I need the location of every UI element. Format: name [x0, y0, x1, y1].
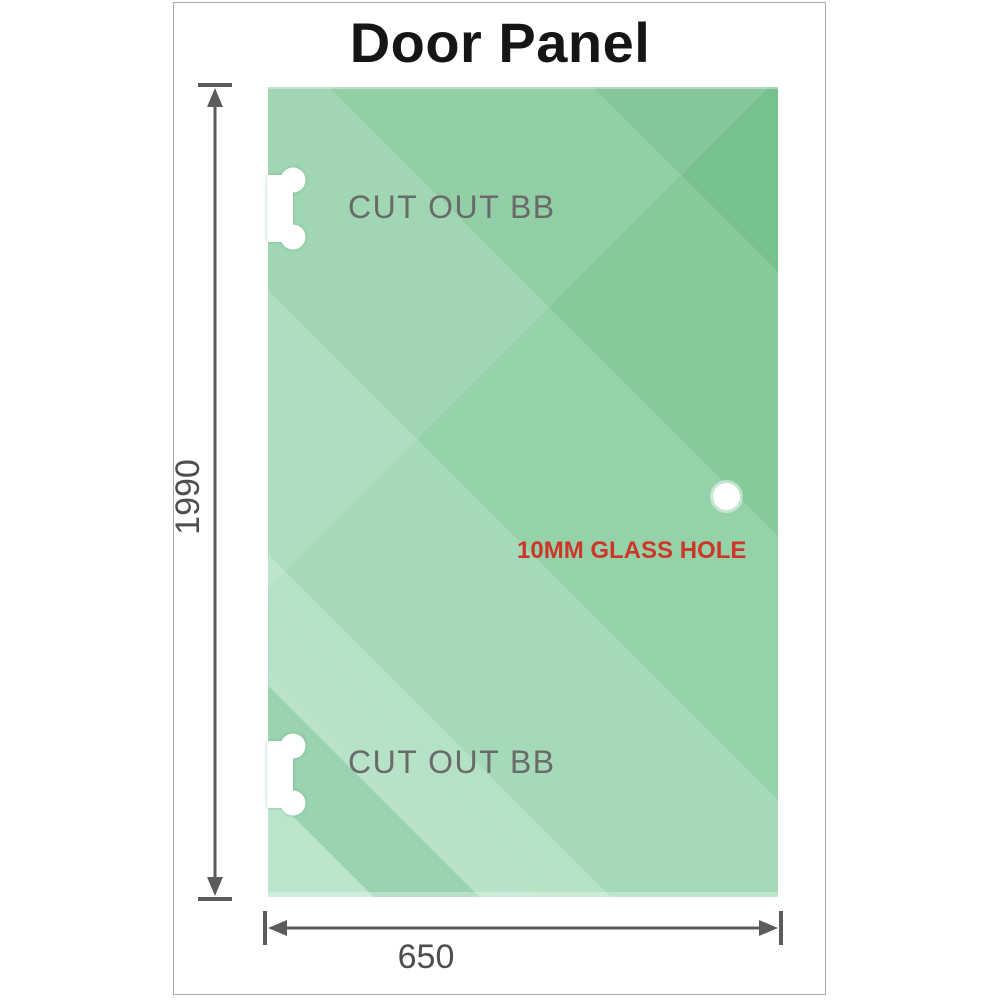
cutout-bb-top	[267, 167, 307, 251]
width-dimension-label: 650	[366, 938, 486, 977]
horizontal-dimension-arrow-icon	[262, 910, 784, 946]
hinge-cutout-icon	[267, 167, 307, 251]
hinge-cutout-icon	[267, 733, 307, 817]
cutout-bb-bottom	[267, 733, 307, 817]
page-title: Door Panel	[173, 10, 827, 75]
width-dimension	[262, 910, 784, 951]
cutout-bb-top-label: CUT OUT BB	[348, 189, 556, 226]
diagram-stage: Door Panel 1990 650	[0, 0, 1000, 1000]
cutout-bb-bottom-label: CUT OUT BB	[348, 744, 556, 781]
height-dimension-label: 1990	[173, 447, 203, 547]
glass-hole-label: 10MM GLASS HOLE	[517, 537, 746, 565]
glass-hole-icon	[713, 483, 740, 510]
